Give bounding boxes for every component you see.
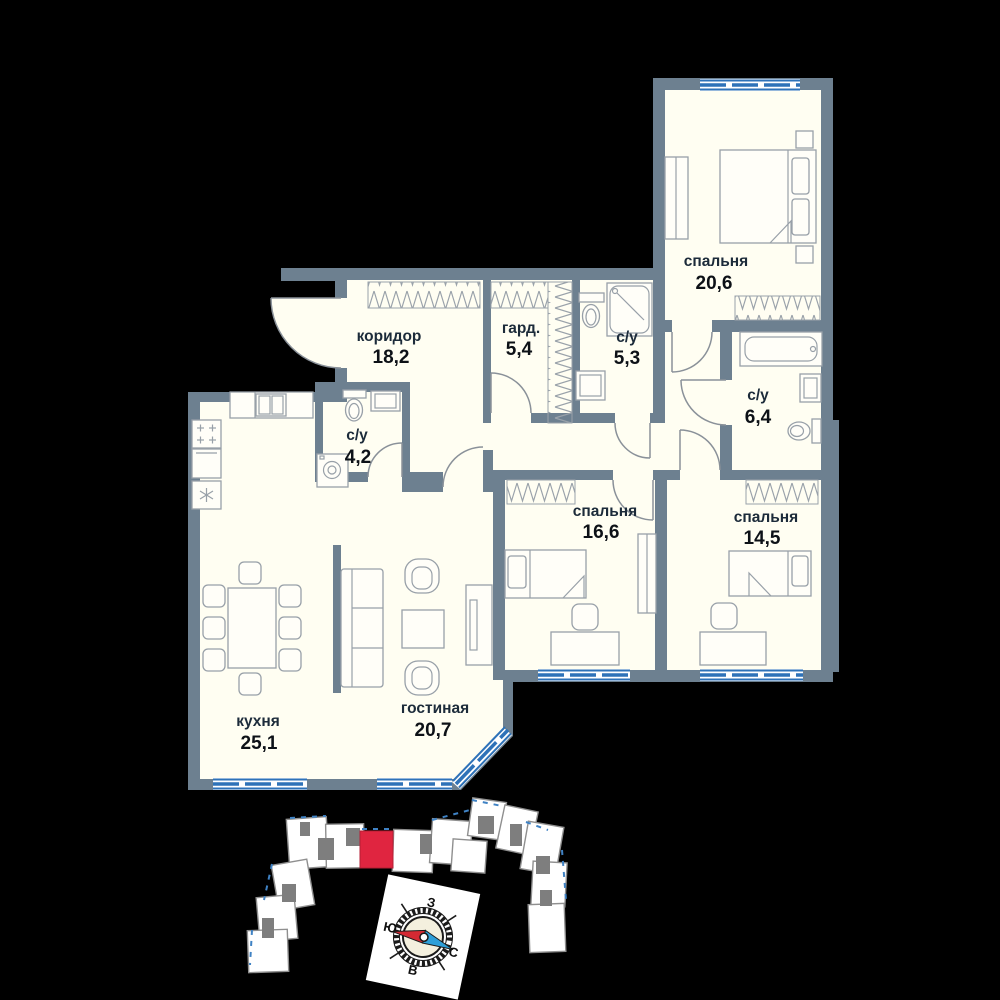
window-bedroom-145: [700, 669, 803, 681]
dining-table: [228, 588, 276, 668]
toilet: [812, 419, 821, 443]
room-label: с/у: [747, 387, 769, 404]
room-label: гард.: [502, 320, 540, 337]
compass: З Ю С В: [366, 874, 480, 999]
room-label: кухня: [236, 713, 280, 730]
highlighted-unit: [360, 831, 393, 868]
room-area: 14,5: [744, 528, 781, 549]
room-label: спальня: [684, 253, 748, 270]
kitchen-sink: [256, 394, 286, 416]
room-area: 5,4: [506, 339, 533, 360]
room-area: 16,6: [583, 522, 620, 543]
coffee-table: [402, 610, 444, 648]
room-area: 6,4: [745, 407, 772, 428]
compass-hub: [419, 932, 428, 941]
stove: [192, 420, 221, 448]
room-label: спальня: [734, 509, 798, 526]
room-label: коридор: [357, 328, 422, 345]
floorplan-canvas: спальня 20,6 коридор 18,2 гард. 5,4 с/у …: [0, 0, 1000, 1000]
desk: [700, 632, 766, 665]
toilet: [343, 390, 366, 398]
nightstand: [796, 131, 813, 148]
chair: [572, 604, 598, 630]
room-area: 4,2: [345, 447, 371, 468]
window-living: [377, 778, 452, 790]
room-area: 5,3: [614, 348, 640, 369]
entry-stub: [281, 268, 335, 281]
entrance-swing-area: [271, 298, 341, 368]
room-label: с/у: [346, 427, 368, 444]
sofa: [341, 569, 383, 687]
living-partition: [333, 545, 341, 693]
toilet: [579, 293, 604, 302]
window-kitchen: [213, 778, 307, 790]
room-label: с/у: [616, 329, 638, 346]
armchair: [405, 661, 439, 695]
chair: [711, 603, 737, 629]
room-area: 20,7: [415, 720, 452, 741]
nightstand: [796, 246, 813, 263]
room-area: 18,2: [373, 347, 410, 368]
site-plan: З Ю С В: [247, 798, 567, 1000]
room-area: 20,6: [696, 273, 733, 294]
armchair: [405, 559, 439, 593]
apartment-floorplan: спальня 20,6 коридор 18,2 гард. 5,4 с/у …: [188, 78, 839, 790]
window-bedroom-166: [538, 669, 630, 681]
floorplan-screenshot: спальня 20,6 коридор 18,2 гард. 5,4 с/у …: [0, 0, 1000, 1000]
room-label: гостиная: [401, 700, 469, 717]
room-label: спальня: [573, 503, 637, 520]
desk: [551, 632, 619, 665]
window-bedroom-206: [700, 79, 800, 91]
room-area: 25,1: [241, 733, 278, 754]
